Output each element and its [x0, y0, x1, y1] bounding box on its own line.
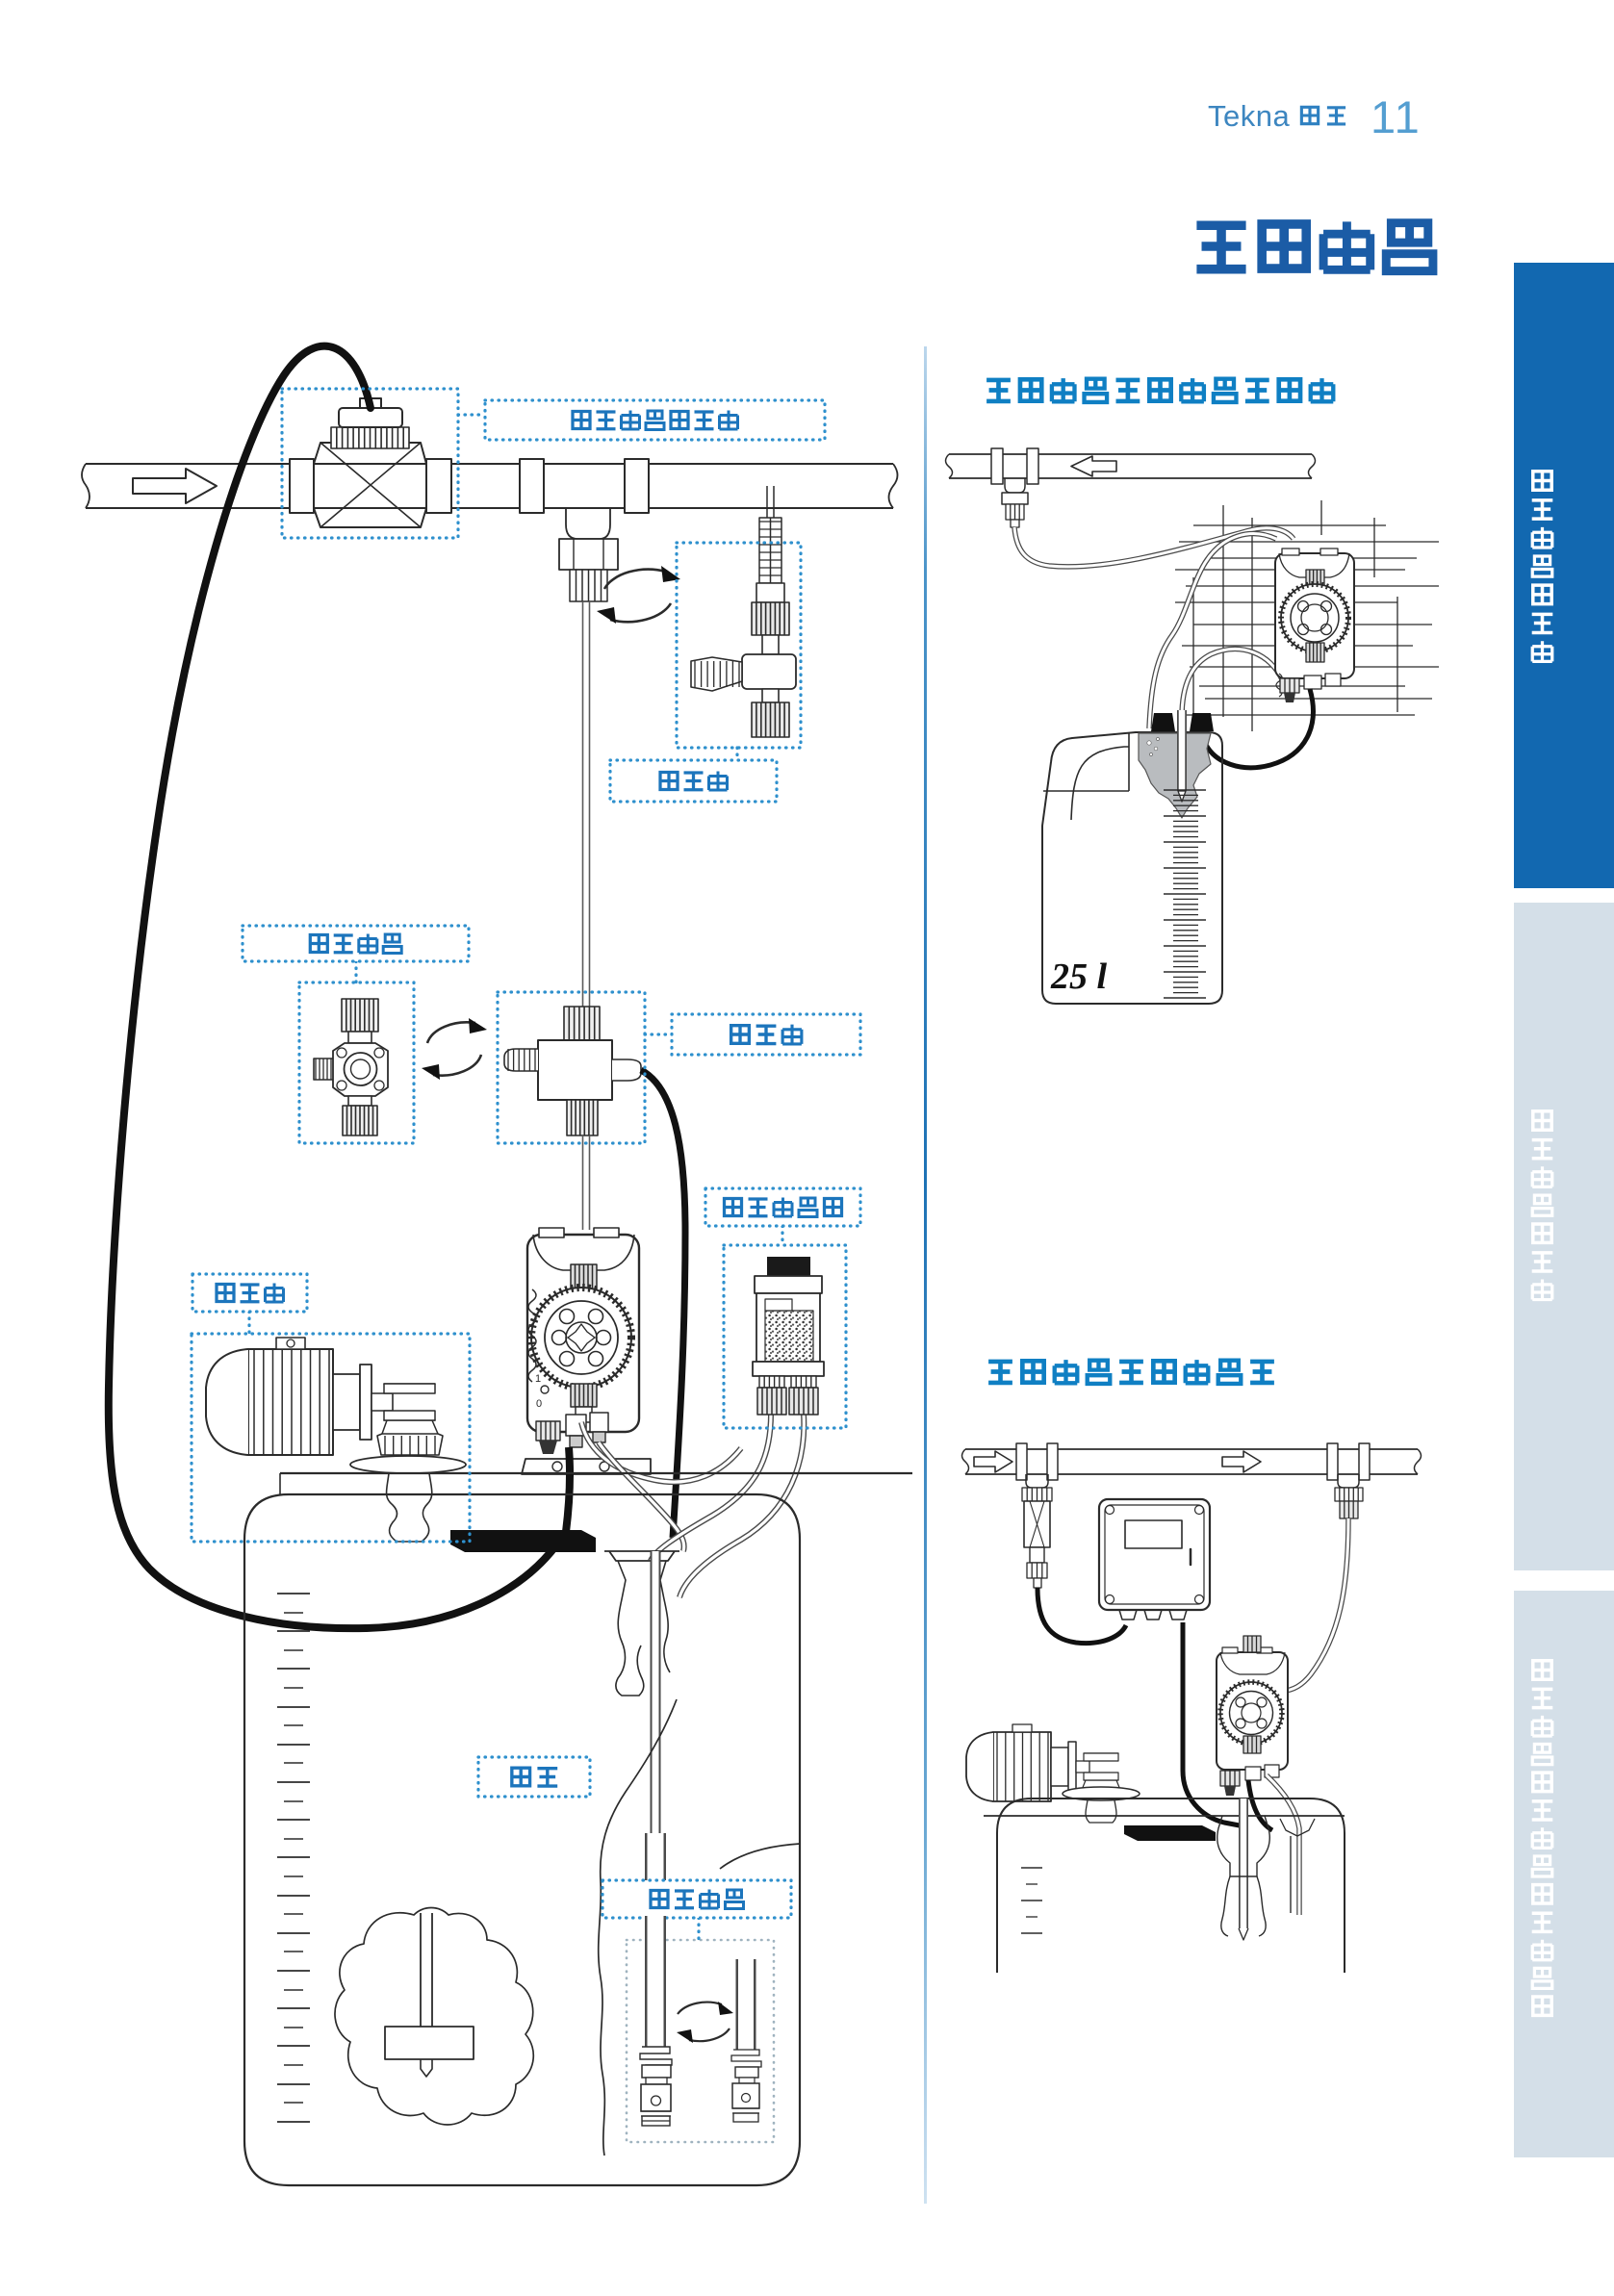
svg-text:0: 0: [536, 1398, 542, 1410]
svg-text:Tekna: Tekna: [1208, 99, 1290, 133]
svg-text:1: 1: [535, 1373, 541, 1385]
svg-text:25 l: 25 l: [1050, 957, 1108, 997]
svg-text:11: 11: [1371, 91, 1422, 142]
